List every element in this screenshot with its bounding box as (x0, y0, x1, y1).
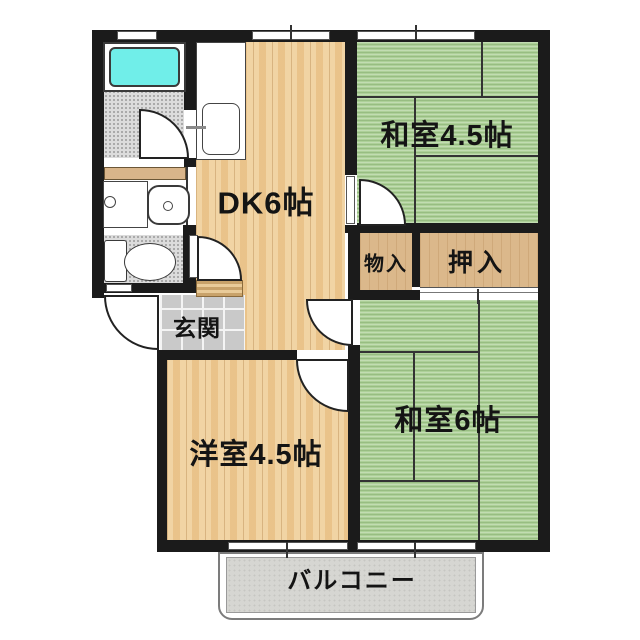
wall-monoiri-oshiire (412, 233, 420, 287)
oshiire-sliding-door-rail (420, 292, 538, 293)
youshitsu-balcony-door-tick (286, 542, 288, 558)
bathtub-icon (109, 47, 180, 87)
washitsu45-door-leaf (346, 176, 355, 224)
wall-youshitsu-left (157, 350, 167, 552)
tatami-line (360, 480, 480, 482)
bathroom-door-opening (184, 110, 196, 158)
room-label-balcony: バルコニー (287, 561, 417, 596)
wall-washitsu45-bottom (345, 223, 538, 233)
oshiire-sliding-door (420, 287, 538, 300)
washing-machine-dial (104, 196, 116, 208)
tatami-line (360, 351, 480, 353)
room-label-washitsu6: 和室6帖 (394, 397, 501, 439)
washroom-shelf (104, 167, 186, 180)
tatami-line (481, 42, 483, 98)
room-label-genkan: 玄関 (173, 309, 221, 343)
wall-outer-bottom (157, 540, 550, 552)
room-label-oshiire: 押入 (448, 243, 506, 279)
tatami-line (414, 155, 538, 157)
oshiire-sliding-door-tick (477, 289, 479, 304)
youshitsu-balcony-door (228, 542, 348, 550)
dk-window-tick (290, 25, 292, 40)
entrance-door-arc (105, 296, 158, 349)
kitchen-faucet-icon (186, 126, 206, 129)
genkan-step-mat (196, 280, 243, 297)
youshitsu-door-opening (297, 350, 348, 360)
wall-outer-right (538, 30, 550, 552)
floor-plan: DK6帖 和室4.5帖 物入 押入 玄関 和室6帖 洋室4.5帖 バルコニー (0, 0, 640, 640)
washitsu45-window-tick (415, 25, 417, 40)
bathroom-window (117, 31, 157, 40)
room-label-washitsu45: 和室4.5帖 (380, 112, 513, 154)
room-label-monoiri: 物入 (364, 248, 408, 277)
washitsu6-balcony-door (357, 542, 476, 550)
washitsu6-balcony-door-tick (414, 542, 416, 558)
wall-monoiri-bottom (348, 290, 420, 300)
toilet-bowl-icon (124, 243, 176, 281)
kitchen-sink-icon (202, 103, 240, 155)
washitsu6-door-opening (348, 300, 360, 345)
washbasin-drain (163, 201, 173, 211)
room-label-dk: DK6帖 (217, 178, 314, 223)
wall-bath-bottom (184, 158, 196, 167)
toilet-window (106, 284, 132, 292)
tatami-line (357, 96, 538, 98)
room-label-youshitsu: 洋室4.5帖 (189, 431, 322, 473)
toilet-door-leaf (189, 235, 198, 278)
